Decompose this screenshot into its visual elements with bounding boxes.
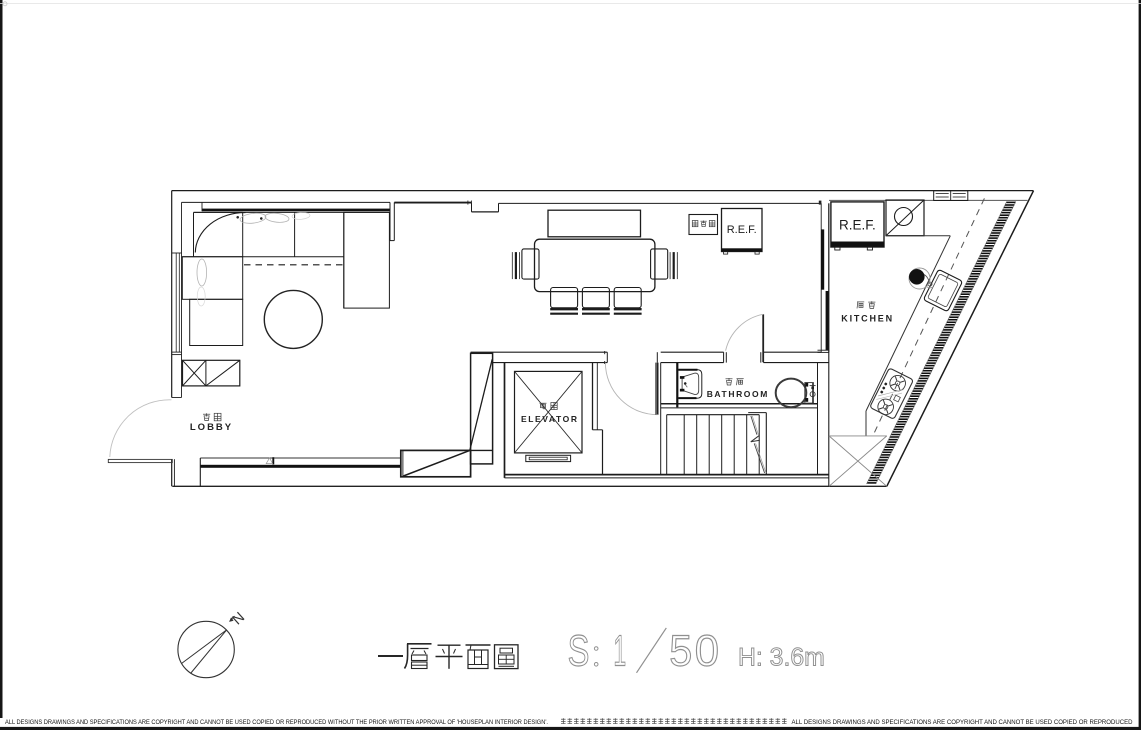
svg-text:H: 3.6m: H: 3.6m xyxy=(738,645,825,672)
svg-text:ALL DESIGNS DRAWINGS AND SPECI: ALL DESIGNS DRAWINGS AND SPECIFICATIONS … xyxy=(792,719,1134,726)
svg-text:5: 5 xyxy=(669,627,692,676)
svg-text:R.E.F.: R.E.F. xyxy=(839,218,876,233)
svg-text:KITCHEN: KITCHEN xyxy=(841,314,894,324)
svg-text:ALL DESIGNS DRAWINGS AND SPECI: ALL DESIGNS DRAWINGS AND SPECIFICATIONS … xyxy=(5,719,548,726)
svg-text:R.E.F.: R.E.F. xyxy=(727,224,757,236)
svg-text:1: 1 xyxy=(613,627,626,676)
svg-text:LOBBY: LOBBY xyxy=(190,422,233,433)
svg-text:BATHROOM: BATHROOM xyxy=(707,389,769,399)
svg-text:ELEVATOR: ELEVATOR xyxy=(521,414,579,424)
svg-text:S: S xyxy=(568,627,590,676)
svg-text:0: 0 xyxy=(695,627,719,676)
